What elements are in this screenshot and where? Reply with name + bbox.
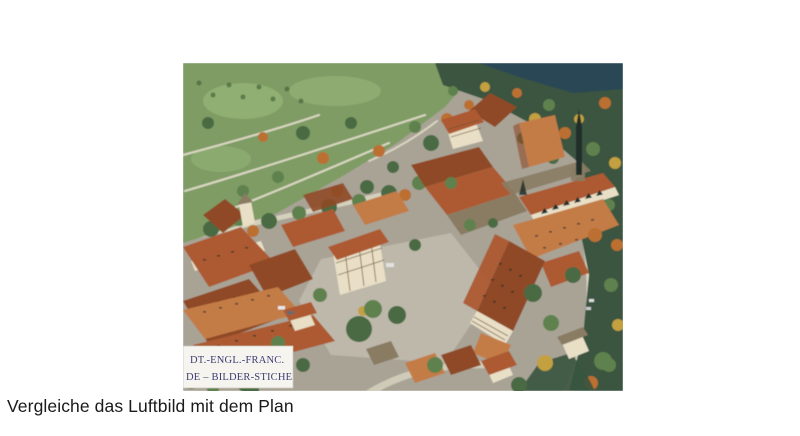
photo-caption-label: DT.-ENGL.-FRANC. DE – BILDER-STICHE: [183, 346, 293, 388]
aerial-photo: DT.-ENGL.-FRANC. DE – BILDER-STICHE: [183, 63, 623, 391]
caption-text: Vergleiche das Luftbild mit dem Plan: [7, 396, 294, 416]
aerial-photo-illustration: DT.-ENGL.-FRANC. DE – BILDER-STICHE: [183, 63, 623, 391]
slide-page: DT.-ENGL.-FRANC. DE – BILDER-STICHE Verg…: [0, 0, 800, 436]
photo-label-line2: DE – BILDER-STICHE: [186, 372, 292, 383]
photo-scene: [183, 63, 623, 391]
photo-label-line1: DT.-ENGL.-FRANC.: [190, 355, 284, 366]
